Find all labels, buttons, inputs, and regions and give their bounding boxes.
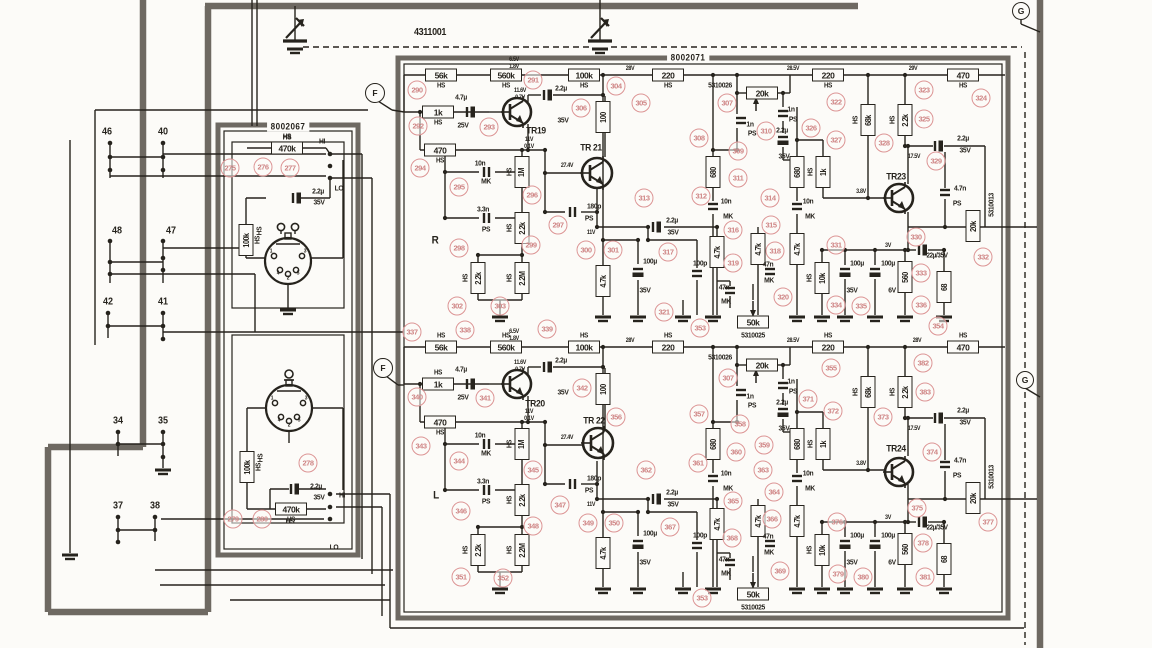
component-label: 35V: [558, 116, 569, 124]
component-label: HS: [283, 133, 292, 141]
component-label: 1n: [746, 120, 753, 128]
component-label: 4.7µ: [455, 93, 467, 101]
hs-tag: HS: [255, 236, 262, 244]
resistor-4.7k: 4.7k: [790, 505, 805, 537]
junction-g-circle: G: [1016, 371, 1034, 389]
hs-tag: HS: [256, 463, 263, 471]
ref-circle-341: 341: [476, 389, 495, 408]
component-label: 5310025: [741, 603, 765, 611]
ref-circle-334: 334: [827, 296, 846, 315]
ref-circle-373: 373: [874, 408, 893, 427]
resistor-560: 560: [898, 261, 913, 293]
channel-label-L: L: [433, 491, 439, 502]
ref-circle-328: 328: [875, 134, 894, 153]
component-label: MK: [721, 297, 731, 305]
component-label: 29V: [909, 66, 918, 72]
hs-tag: HS: [434, 370, 442, 377]
component-label: 3V: [885, 243, 891, 249]
component-label: 27.4V: [561, 163, 573, 169]
junction-f-circle: F: [373, 358, 393, 378]
component-label: 35V: [779, 424, 790, 432]
component-label: 5310026: [708, 81, 732, 89]
component-label: 0.7V: [515, 367, 525, 373]
ref-circle-311: 311: [729, 169, 748, 188]
resistor-470: 470: [947, 69, 979, 82]
ref-circle-280: 280: [253, 510, 272, 529]
resistor-560k: 560k: [490, 69, 522, 82]
ref-circle-327: 327: [827, 131, 846, 150]
ref-circle-317: 317: [659, 243, 678, 262]
resistor-470: 470: [424, 144, 456, 157]
component-label: 2.2µ: [312, 187, 324, 195]
ref-circle-381: 381: [916, 568, 935, 587]
component-label: 4.7n: [954, 456, 966, 464]
resistor-1k: 1k: [816, 428, 831, 460]
component-label: 35V: [558, 388, 569, 396]
ref-circle-368: 368: [723, 529, 742, 548]
ref-circle-347: 347: [551, 496, 570, 515]
hs-tag: HS: [959, 333, 967, 340]
component-label: 100µ: [881, 259, 895, 267]
ref-circle-343: 343: [412, 437, 431, 456]
connector-pin-46: 46: [102, 127, 112, 138]
ref-circle-304: 304: [607, 77, 626, 96]
resistor-68: 68: [937, 271, 952, 303]
resistor-56k: 56k: [425, 69, 457, 82]
ref-circle-313: 313: [635, 189, 654, 208]
ref-circle-344: 344: [450, 452, 469, 471]
component-label: 25V: [458, 121, 469, 129]
component-label: 1n: [746, 392, 753, 400]
schematic-labels: 56kHS56kHS560kHS560kHS100kHS100kHS220HS2…: [0, 0, 1152, 648]
hs-tag: HS: [807, 274, 814, 282]
ref-circle-382: 382: [914, 354, 933, 373]
component-label: 180p: [587, 474, 601, 482]
resistor-100: 100: [596, 373, 611, 405]
component-label: 22µ/35V: [926, 253, 947, 260]
din-pin-2: 2: [287, 276, 289, 282]
ref-circle-371: 371: [799, 390, 818, 409]
resistor-68: 68: [937, 543, 952, 575]
junction-g-circle: G: [1012, 2, 1030, 20]
resistor-2.2k: 2.2k: [515, 484, 530, 516]
resistor-68k: 68k: [861, 376, 876, 408]
component-label: 4.7n: [954, 184, 966, 192]
component-label: 35V: [314, 493, 325, 501]
ref-circle-353: 353: [693, 589, 712, 608]
ref-circle-332: 332: [974, 248, 993, 267]
resistor-10k: 10k: [815, 534, 830, 566]
component-label: 35V: [314, 198, 325, 206]
ref-circle-278: 278: [299, 454, 318, 473]
hs-tag: HS: [890, 116, 897, 124]
resistor-560: 560: [898, 533, 913, 565]
ref-circle-302: 302: [448, 297, 467, 316]
ref-circle-374: 374: [923, 443, 942, 462]
ref-circle-305: 305: [632, 94, 651, 113]
din-pin-1: 1: [271, 396, 273, 402]
component-label: 11.6V: [514, 360, 526, 366]
pot-50k: 50k: [737, 316, 769, 329]
component-label: 6.5V: [509, 329, 519, 335]
hs-tag: HS: [890, 388, 897, 396]
component-label: 100µ: [850, 259, 864, 267]
ref-circle-297: 297: [549, 216, 568, 235]
resistor-220: 220: [652, 69, 684, 82]
ref-circle-333: 333: [912, 264, 931, 283]
component-label: 1.8V: [509, 336, 519, 342]
component-label: 6V: [888, 286, 896, 294]
ref-circle-325: 325: [915, 110, 934, 129]
ref-circle-360: 360: [727, 443, 746, 462]
component-label: 47n: [763, 532, 774, 540]
component-label: 5310013: [987, 193, 995, 217]
component-label: 47n: [763, 260, 774, 268]
component-label: 28V: [626, 338, 635, 344]
component-label: 1n: [787, 105, 794, 113]
ref-circle-319: 319: [724, 254, 743, 273]
component-label: 17.5V: [908, 154, 920, 160]
pot-50k: 50k: [737, 588, 769, 601]
component-label: PS: [748, 401, 756, 409]
ref-circle-312: 312: [692, 187, 711, 206]
resistor-20k: 20k: [966, 482, 981, 514]
component-label: MK: [481, 449, 491, 457]
ref-circle-348: 348: [524, 517, 543, 536]
ref-circle-361: 361: [689, 454, 708, 473]
component-label: MK: [481, 177, 491, 185]
hs-tag: HS: [507, 274, 514, 282]
component-label: 5310026: [708, 353, 732, 361]
channel-label-R: R: [432, 236, 439, 247]
resistor-680: 680: [706, 428, 721, 460]
ref-circle-299: 299: [522, 236, 541, 255]
ref-circle-315: 315: [762, 216, 781, 235]
connector-pin-37: 37: [113, 501, 123, 512]
component-label: 1.8V: [509, 64, 519, 70]
ref-circle-362: 362: [637, 461, 656, 480]
hs-tag: HS: [808, 168, 815, 176]
module-label-8002067: 8002067: [267, 123, 309, 132]
component-label: 0.1V: [524, 144, 534, 150]
connector-pin-34: 34: [113, 416, 123, 427]
resistor-220: 220: [652, 341, 684, 354]
resistor-1k: 1k: [422, 378, 454, 391]
component-label: 5310025: [741, 331, 765, 339]
ref-circle-330: 330: [907, 228, 926, 247]
ref-circle-279: 279: [224, 510, 243, 529]
component-label: 3.3n: [477, 205, 489, 213]
ref-circle-359: 359: [755, 436, 774, 455]
resistor-10k: 10k: [815, 262, 830, 294]
ref-circle-346: 346: [452, 502, 471, 521]
ref-circle-363: 363: [754, 461, 773, 480]
transistor-label: TR24: [886, 444, 905, 454]
ref-circle-351: 351: [452, 568, 471, 587]
component-label: 3.8V: [856, 189, 866, 195]
resistor-1M: 1M: [515, 156, 530, 188]
connector-pin-42: 42: [103, 297, 113, 308]
component-label: MK: [805, 212, 815, 220]
ref-circle-337: 337: [403, 323, 422, 342]
component-label: 10n: [475, 431, 486, 439]
resistor-1k: 1k: [816, 156, 831, 188]
resistor-2.2M: 2.2M: [515, 534, 530, 566]
din-pin-2: 2: [288, 423, 290, 429]
ref-circle-310: 310: [757, 122, 776, 141]
component-label: PS: [789, 387, 797, 395]
connector-pin-35: 35: [158, 416, 168, 427]
component-label: 47n: [719, 283, 730, 291]
component-label: PS: [585, 486, 593, 494]
ref-circle-290: 290: [408, 81, 427, 100]
hs-tag: HS: [580, 83, 588, 90]
component-label: 180p: [587, 202, 601, 210]
junction-f-circle: F: [365, 83, 385, 103]
hs-tag: HS: [434, 120, 442, 127]
component-label: 100µ: [881, 531, 895, 539]
ref-circle-358: 358: [731, 415, 750, 434]
component-label: MK: [721, 569, 731, 577]
hs-tag: HS: [507, 440, 514, 448]
ref-circle-356: 356: [607, 408, 626, 427]
ref-circle-316: 316: [724, 221, 743, 240]
ref-circle-383: 383: [916, 383, 935, 402]
transistor-label: TR23: [886, 172, 905, 182]
ref-circle-326: 326: [802, 119, 821, 138]
ref-circle-375: 375: [908, 499, 927, 518]
transistor-label: TR 22: [583, 416, 604, 426]
ref-circle-303: 303: [491, 297, 510, 316]
resistor-68k: 68k: [861, 104, 876, 136]
resistor-470k: 470k: [271, 142, 303, 155]
component-label: 35V: [960, 418, 971, 426]
din-pin-4: 4: [277, 271, 279, 277]
component-label: MK: [764, 548, 774, 556]
ref-circle-324: 324: [972, 89, 991, 108]
hs-tag: HS: [502, 83, 510, 90]
ref-circle-293: 293: [480, 118, 499, 137]
resistor-100k: 100k: [239, 224, 254, 256]
component-label: 35V: [640, 286, 651, 294]
ref-circle-335: 335: [852, 297, 871, 316]
resistor-2.2k: 2.2k: [471, 534, 486, 566]
ref-circle-369: 369: [771, 562, 790, 581]
component-label: HI: [339, 491, 345, 499]
din-pin-1: 1: [270, 249, 272, 255]
transistor-label: TR20: [525, 399, 544, 409]
ref-circle-292: 292: [409, 117, 428, 136]
resistor-680: 680: [706, 156, 721, 188]
ref-circle-354: 354: [929, 317, 948, 336]
hs-tag: HS: [437, 83, 445, 90]
resistor-2.2k: 2.2k: [898, 376, 913, 408]
ref-circle-298: 298: [450, 239, 469, 258]
resistor-20k: 20k: [966, 210, 981, 242]
ref-circle-296: 296: [523, 186, 542, 205]
pot-20k: 20k: [746, 359, 778, 372]
hs-tag: HS: [436, 158, 444, 165]
resistor-470k: 470k: [275, 503, 307, 516]
resistor-560k: 560k: [490, 341, 522, 354]
component-label: 3V: [885, 515, 891, 521]
ref-circle-318: 318: [766, 242, 785, 261]
component-label: HI: [319, 137, 325, 145]
component-label: 10n: [803, 469, 814, 477]
component-label: 100µ: [643, 529, 657, 537]
resistor-2.2k: 2.2k: [898, 104, 913, 136]
component-label: 2.2µ: [666, 216, 678, 224]
din-pin-3: 3: [305, 396, 307, 402]
component-label: 6V: [888, 558, 896, 566]
ref-circle-307: 307: [719, 369, 738, 388]
component-label: MK: [723, 212, 733, 220]
ref-circle-295: 295: [450, 178, 469, 197]
resistor-220: 220: [812, 341, 844, 354]
hs-tag: HS: [664, 83, 672, 90]
ref-circle-380: 380: [854, 568, 873, 587]
hs-tag: HS: [853, 388, 860, 396]
ref-circle-345: 345: [524, 461, 543, 480]
ref-circle-308: 308: [690, 129, 709, 148]
ref-circle-301: 301: [604, 241, 623, 260]
component-label: HS: [286, 517, 295, 525]
resistor-100k: 100k: [568, 341, 600, 354]
component-label: 11V: [587, 502, 595, 508]
resistor-2.2M: 2.2M: [515, 262, 530, 294]
component-label: 2.2µ: [555, 84, 567, 92]
resistor-4.7k: 4.7k: [710, 236, 725, 268]
resistor-680: 680: [790, 156, 805, 188]
component-label: LO: [335, 184, 344, 192]
ref-circle-376: 376: [828, 513, 847, 532]
resistor-1M: 1M: [515, 428, 530, 460]
ref-circle-350: 350: [605, 514, 624, 533]
component-label: 35V: [960, 146, 971, 154]
hs-tag: HS: [507, 546, 514, 554]
component-label: 100µ: [643, 257, 657, 265]
hs-tag: HS: [580, 333, 588, 340]
ref-circle-367: 367: [661, 518, 680, 537]
component-label: 35V: [668, 228, 679, 236]
component-label: MK: [764, 276, 774, 284]
transistor-label: TR19: [526, 126, 545, 136]
ref-circle-331: 331: [827, 236, 846, 255]
ref-circle-339: 339: [538, 320, 557, 339]
hs-tag: HS: [807, 546, 814, 554]
component-label: 35V: [668, 500, 679, 508]
din-pin-3: 3: [304, 249, 306, 255]
component-label: PS: [482, 497, 490, 505]
component-label: 28V: [913, 338, 922, 344]
ref-circle-321: 321: [655, 303, 674, 322]
din-pin-5: 5: [298, 418, 300, 424]
component-label: HS: [255, 227, 263, 236]
component-label: 11V: [525, 409, 533, 415]
component-label: PS: [748, 129, 756, 137]
component-label: 25V: [458, 393, 469, 401]
ref-circle-377: 377: [979, 513, 998, 532]
ref-circle-340: 340: [408, 388, 427, 407]
module-label-8002071: 8002071: [667, 54, 709, 63]
connector-pin-41: 41: [158, 297, 168, 308]
ref-circle-365: 365: [724, 492, 743, 511]
resistor-4.7k: 4.7k: [790, 233, 805, 265]
component-label: 2.2µ: [776, 126, 788, 134]
ref-circle-276: 276: [254, 158, 273, 177]
component-label: 0.1V: [524, 416, 534, 422]
component-label: HS: [256, 454, 264, 463]
component-label: 3.3n: [477, 477, 489, 485]
ref-circle-355: 355: [822, 359, 841, 378]
component-label: 2.2µ: [957, 134, 969, 142]
hs-tag: HS: [437, 333, 445, 340]
connector-pin-40: 40: [158, 127, 168, 138]
component-label: MK: [805, 484, 815, 492]
ref-circle-322: 322: [827, 93, 846, 112]
component-label: 2.2µ: [776, 398, 788, 406]
hs-tag: HS: [507, 224, 514, 232]
ref-circle-294: 294: [411, 159, 430, 178]
resistor-4.7k: 4.7k: [596, 537, 611, 569]
hs-tag: HS: [808, 440, 815, 448]
hs-tag: HS: [463, 546, 470, 554]
ref-circle-277: 277: [281, 159, 300, 178]
component-label: 28.5V: [787, 66, 799, 72]
component-label: 28V: [626, 66, 635, 72]
component-label: 0.7V: [515, 95, 525, 101]
component-label: 22µ/35V: [926, 525, 947, 532]
component-label: 10n: [721, 197, 732, 205]
din-pin-4: 4: [278, 418, 280, 424]
component-label: 2.2µ: [310, 482, 322, 490]
component-label: 2.2µ: [555, 356, 567, 364]
hs-tag: HS: [853, 116, 860, 124]
component-label: PS: [789, 115, 797, 123]
component-label: 100p: [693, 259, 707, 267]
ref-circle-379: 379: [829, 565, 848, 584]
ref-circle-320: 320: [774, 288, 793, 307]
module-label-4311001: 4311001: [414, 28, 446, 38]
component-label: 27.4V: [561, 435, 573, 441]
ref-circle-309: 309: [729, 142, 748, 161]
hs-tag: HS: [824, 83, 832, 90]
component-label: 17.5V: [908, 426, 920, 432]
component-label: 10n: [803, 197, 814, 205]
component-label: 5310013: [987, 465, 995, 489]
hs-tag: HS: [463, 274, 470, 282]
component-label: 35V: [779, 152, 790, 160]
ref-circle-323: 323: [915, 81, 934, 100]
component-label: 6.5V: [509, 57, 519, 63]
component-label: PS: [953, 199, 961, 207]
transistor-label: TR 21: [580, 143, 601, 153]
component-label: 35V: [847, 558, 858, 566]
component-label: PS: [953, 471, 961, 479]
component-label: 11.6V: [514, 88, 526, 94]
hs-tag: HS: [507, 496, 514, 504]
component-label: PS: [482, 225, 490, 233]
resistor-100k: 100k: [240, 451, 255, 483]
component-label: LO: [330, 543, 339, 551]
component-label: 1n: [787, 377, 794, 385]
ref-circle-349: 349: [579, 514, 598, 533]
component-label: 35V: [640, 558, 651, 566]
component-label: 11V: [587, 230, 595, 236]
component-label: PS: [585, 214, 593, 222]
ref-circle-357: 357: [690, 405, 709, 424]
component-label: 100p: [693, 531, 707, 539]
